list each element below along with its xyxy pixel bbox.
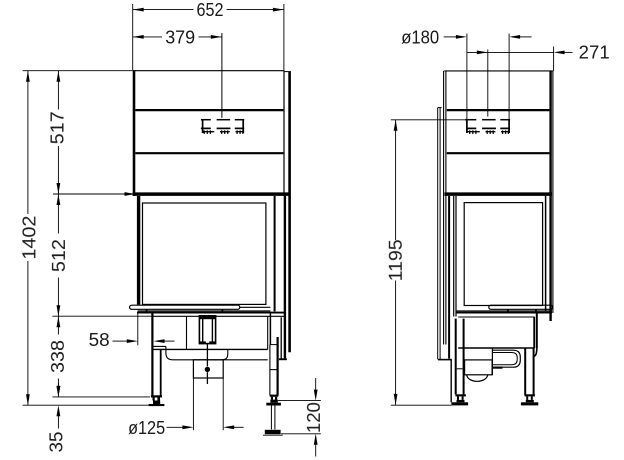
svg-text:338: 338	[48, 340, 68, 373]
svg-text:379: 379	[165, 27, 195, 47]
svg-text:271: 271	[579, 42, 610, 62]
svg-text:1402: 1402	[19, 216, 39, 260]
svg-text:512: 512	[49, 239, 69, 272]
svg-text:35: 35	[46, 432, 66, 453]
svg-text:120: 120	[304, 402, 324, 433]
svg-text:517: 517	[47, 111, 67, 144]
svg-text:1195: 1195	[386, 239, 406, 281]
svg-text:58: 58	[89, 330, 110, 350]
svg-text:ø125: ø125	[128, 418, 165, 438]
svg-text:652: 652	[197, 0, 224, 20]
svg-text:ø180: ø180	[401, 27, 439, 47]
